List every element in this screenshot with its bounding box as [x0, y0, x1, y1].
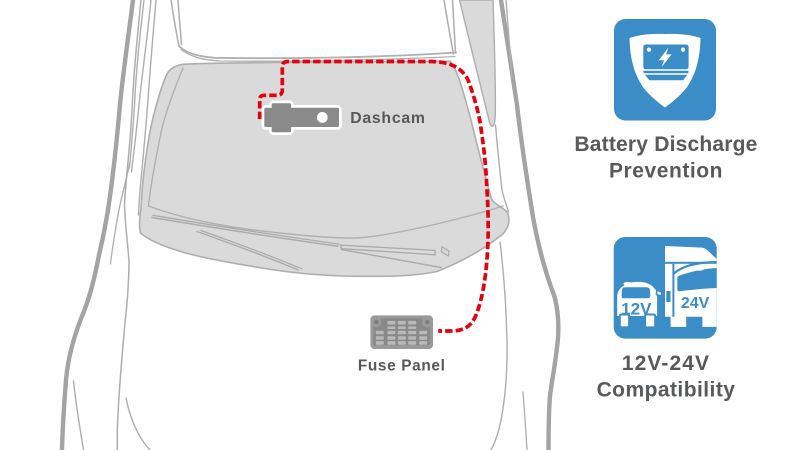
svg-text:Fuse Panel: Fuse Panel — [358, 358, 446, 375]
svg-text:12V-24V: 12V-24V — [622, 352, 710, 375]
svg-text:12V: 12V — [621, 300, 652, 319]
svg-text:Compatibility: Compatibility — [597, 379, 736, 402]
svg-text:Dashcam: Dashcam — [350, 110, 426, 127]
svg-text:Battery Discharge: Battery Discharge — [574, 133, 757, 156]
svg-text:24V: 24V — [681, 295, 710, 312]
svg-text:Prevention: Prevention — [609, 159, 723, 182]
